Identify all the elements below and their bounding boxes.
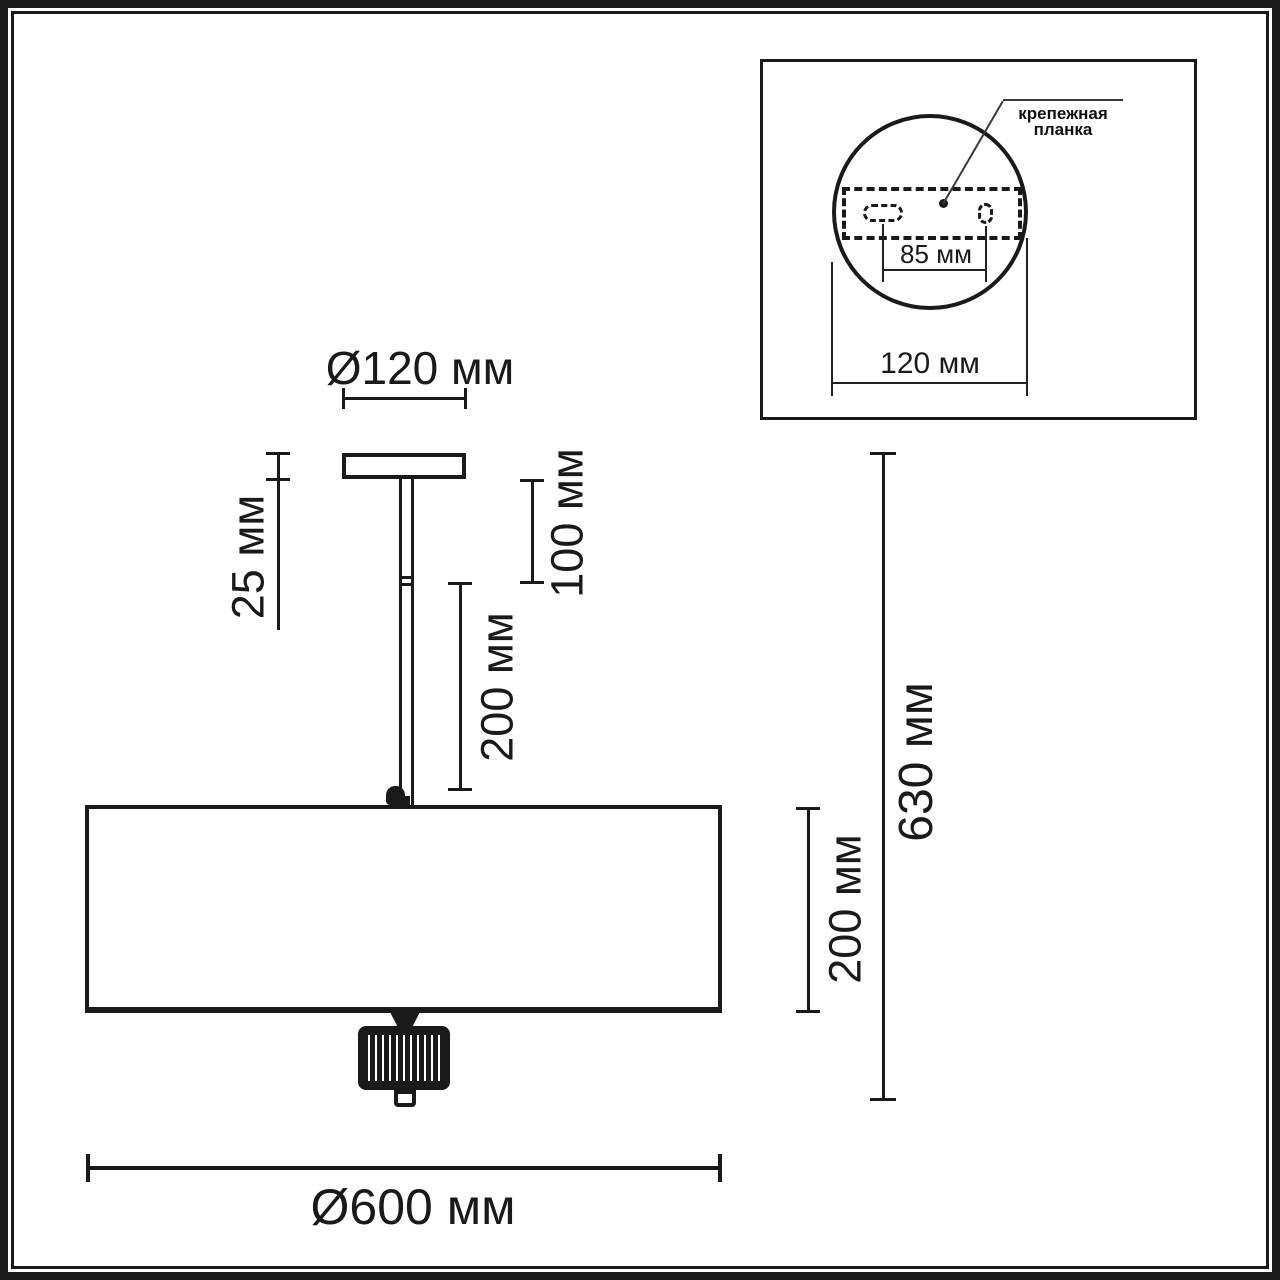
leader-line-shelf — [1003, 99, 1123, 101]
canopy-diameter-tick-left — [342, 388, 345, 409]
total-height-label: 630 мм — [893, 682, 941, 841]
hole-spacing-tick-left — [882, 264, 884, 276]
total-height-dimension-line — [882, 453, 885, 1101]
canopy-diameter-label: Ø120 мм — [326, 345, 515, 391]
rod-upper-tick-top — [520, 479, 544, 482]
shade-height-tick-bottom — [796, 1010, 820, 1013]
shade-height-dimension-line — [807, 808, 810, 1012]
rod-upper-segment-label: 100 мм — [545, 448, 590, 597]
total-height-tick-bottom — [870, 1098, 896, 1101]
canopy-height-tick-bottom — [266, 478, 290, 481]
mounting-plate-label: крепежная планка — [1018, 106, 1108, 138]
shade-height-tick-top — [796, 807, 820, 810]
lamp-shade — [85, 805, 722, 1013]
finial-ribbed-body — [358, 1026, 450, 1090]
base-diameter-dimension-line — [832, 382, 1027, 384]
canopy-height-tick-top — [266, 452, 290, 455]
rod-lower-segment-label: 200 мм — [475, 612, 520, 761]
mounting-plate-label-line2: планка — [1018, 122, 1108, 138]
base-diameter-tick-right — [1026, 374, 1028, 392]
shade-diameter-tick-right — [718, 1154, 722, 1182]
hole-spacing-tick-right — [985, 264, 987, 276]
mounting-round-hole — [978, 203, 993, 224]
total-height-tick-top — [870, 452, 896, 455]
canopy-diameter-tick-right — [464, 388, 467, 409]
rod-joint-upper — [399, 576, 414, 579]
suspension-rod — [399, 479, 414, 807]
shade-diameter-label: Ø600 мм — [311, 1182, 516, 1232]
canopy-diameter-dimension-line — [342, 397, 467, 400]
rod-upper-tick-bottom — [520, 581, 544, 584]
finial-stem — [394, 1090, 416, 1107]
base-diameter-extension-right — [1026, 238, 1028, 396]
canopy-height-label: 25 мм — [226, 495, 271, 619]
base-diameter-tick-left — [831, 374, 833, 392]
shade-diameter-tick-left — [86, 1154, 90, 1182]
rod-lower-dimension-line — [459, 583, 462, 791]
mounting-slot-hole — [863, 204, 903, 222]
base-diameter-label: 120 мм — [880, 349, 980, 379]
finial-neck — [390, 1012, 420, 1026]
rod-joint-lower — [399, 583, 414, 586]
hole-spacing-label: 85 мм — [900, 241, 972, 267]
rod-lower-tick-top — [448, 582, 472, 585]
shade-diameter-dimension-line — [88, 1166, 721, 1170]
technical-drawing-page: Ø120 мм 25 мм 100 мм 200 мм 200 мм 630 м… — [0, 0, 1280, 1280]
rod-lower-tick-bottom — [448, 788, 472, 791]
rod-upper-dimension-line — [531, 480, 534, 583]
hole-spacing-dimension-line — [883, 269, 986, 271]
shade-height-label: 200 мм — [823, 834, 868, 983]
ceiling-canopy — [342, 453, 466, 479]
